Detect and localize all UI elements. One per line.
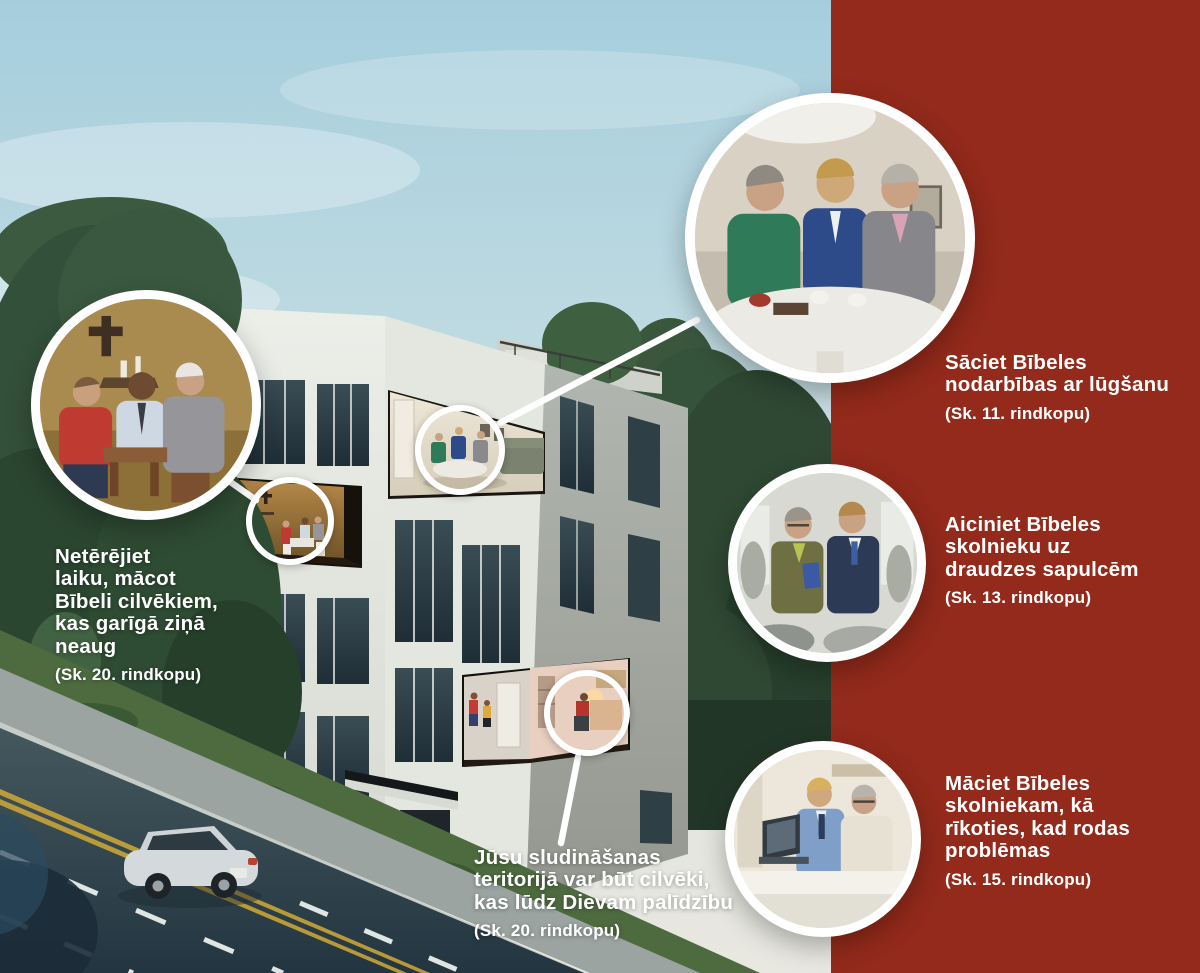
connector-living-room-to-prayer-photo bbox=[500, 320, 697, 423]
inset-circle-praying-woman bbox=[544, 670, 630, 756]
callout-start-study-ref: (Sk. 11. rindkopu) bbox=[945, 404, 1195, 424]
callout-invite-meetings: Aiciniet Bībeles skolnieku uz draudzes s… bbox=[945, 514, 1195, 608]
callout-dont-waste-time-ref: (Sk. 20. rindkopu) bbox=[55, 665, 285, 685]
front-glazing bbox=[395, 520, 520, 762]
callout-dont-waste-time: Netērējiet laiku, mācot Bībeli cilvēkiem… bbox=[55, 546, 285, 685]
home-clergy-study-scene bbox=[40, 299, 252, 511]
callout-dont-waste-time-text: Netērējiet laiku, mācot Bībeli cilvēkiem… bbox=[55, 546, 285, 658]
connector-prayer-inset-to-text bbox=[561, 757, 578, 843]
right-face-windows bbox=[560, 396, 672, 844]
foreground-blur bbox=[0, 812, 98, 973]
callout-start-study-text: Sāciet Bībeles nodarbības ar lūgšanu bbox=[945, 352, 1195, 397]
callout-invite-meetings-ref: (Sk. 13. rindkopu) bbox=[945, 588, 1195, 608]
prayer-study-scene bbox=[695, 103, 965, 373]
apartment-building bbox=[230, 308, 688, 903]
laptop-study-scene bbox=[734, 750, 912, 928]
callout-teach-problems: Māciet Bībeles skolniekam, kā rīkoties, … bbox=[945, 773, 1195, 890]
callout-invite-meetings-text: Aiciniet Bībeles skolnieku uz draudzes s… bbox=[945, 514, 1195, 581]
callout-start-study: Sāciet Bībeles nodarbības ar lūgšanu (Sk… bbox=[945, 352, 1195, 424]
photo-home-clergy-study bbox=[31, 290, 261, 520]
callout-territory-prayer: Jūsu sludināšanas teritorijā var būt cil… bbox=[474, 847, 754, 941]
kingdom-hall-scene bbox=[737, 473, 917, 653]
inset-circle-living-room bbox=[415, 405, 505, 495]
entrance-awning bbox=[345, 770, 458, 895]
rooftop-terrace bbox=[497, 302, 662, 394]
photo-kingdom-hall bbox=[728, 464, 926, 662]
photo-prayer-study bbox=[685, 93, 975, 383]
callout-territory-prayer-text: Jūsu sludināšanas teritorijā var būt cil… bbox=[474, 847, 754, 914]
callout-teach-problems-text: Māciet Bībeles skolniekam, kā rīkoties, … bbox=[945, 773, 1195, 863]
callout-teach-problems-ref: (Sk. 15. rindkopu) bbox=[945, 870, 1195, 890]
infographic-canvas: Netērējiet laiku, mācot Bībeli cilvēkiem… bbox=[0, 0, 1200, 973]
callout-territory-prayer-ref: (Sk. 20. rindkopu) bbox=[474, 921, 754, 941]
car bbox=[118, 826, 262, 908]
photo-laptop-study bbox=[725, 741, 921, 937]
